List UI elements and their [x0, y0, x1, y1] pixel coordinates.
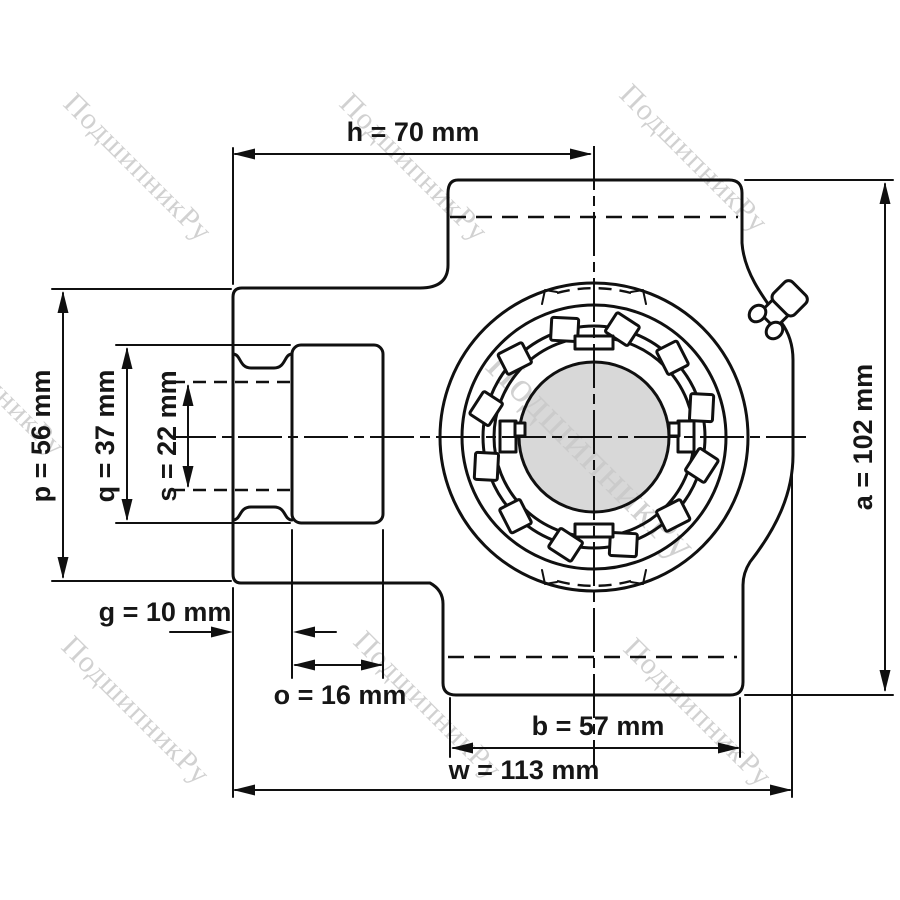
dimension-label-w: w = 113 mm — [448, 755, 600, 785]
slide-lug — [292, 345, 383, 523]
dimension-label-a: a = 102 mm — [848, 364, 878, 510]
dimension-label-g: g = 10 mm — [99, 597, 232, 627]
watermark-text: ПодшипникРу — [57, 87, 219, 249]
watermark-text: ПодшипникРу — [613, 78, 775, 240]
dimension-label-s: s = 22 mm — [152, 370, 182, 501]
technical-drawing-page: ПодшипникРу ПодшипникРу ПодшипникРу Подш… — [0, 0, 900, 900]
watermark-text: ПодшипникРу — [333, 87, 495, 249]
slot-lip-upper — [233, 354, 292, 368]
slot-lip-lower — [233, 507, 292, 520]
watermark-text: ПодшипникРу — [55, 630, 217, 792]
dimension-label-o: o = 16 mm — [274, 680, 407, 710]
dimension-label-b: b = 57 mm — [532, 711, 665, 741]
dimension-label-h: h = 70 mm — [347, 117, 480, 147]
bearing-unit-drawing: ПодшипникРу ПодшипникРу ПодшипникРу Подш… — [0, 0, 900, 900]
dimension-label-q: q = 37 mm — [90, 370, 120, 503]
dimension-label-p: p = 56 mm — [26, 370, 56, 503]
